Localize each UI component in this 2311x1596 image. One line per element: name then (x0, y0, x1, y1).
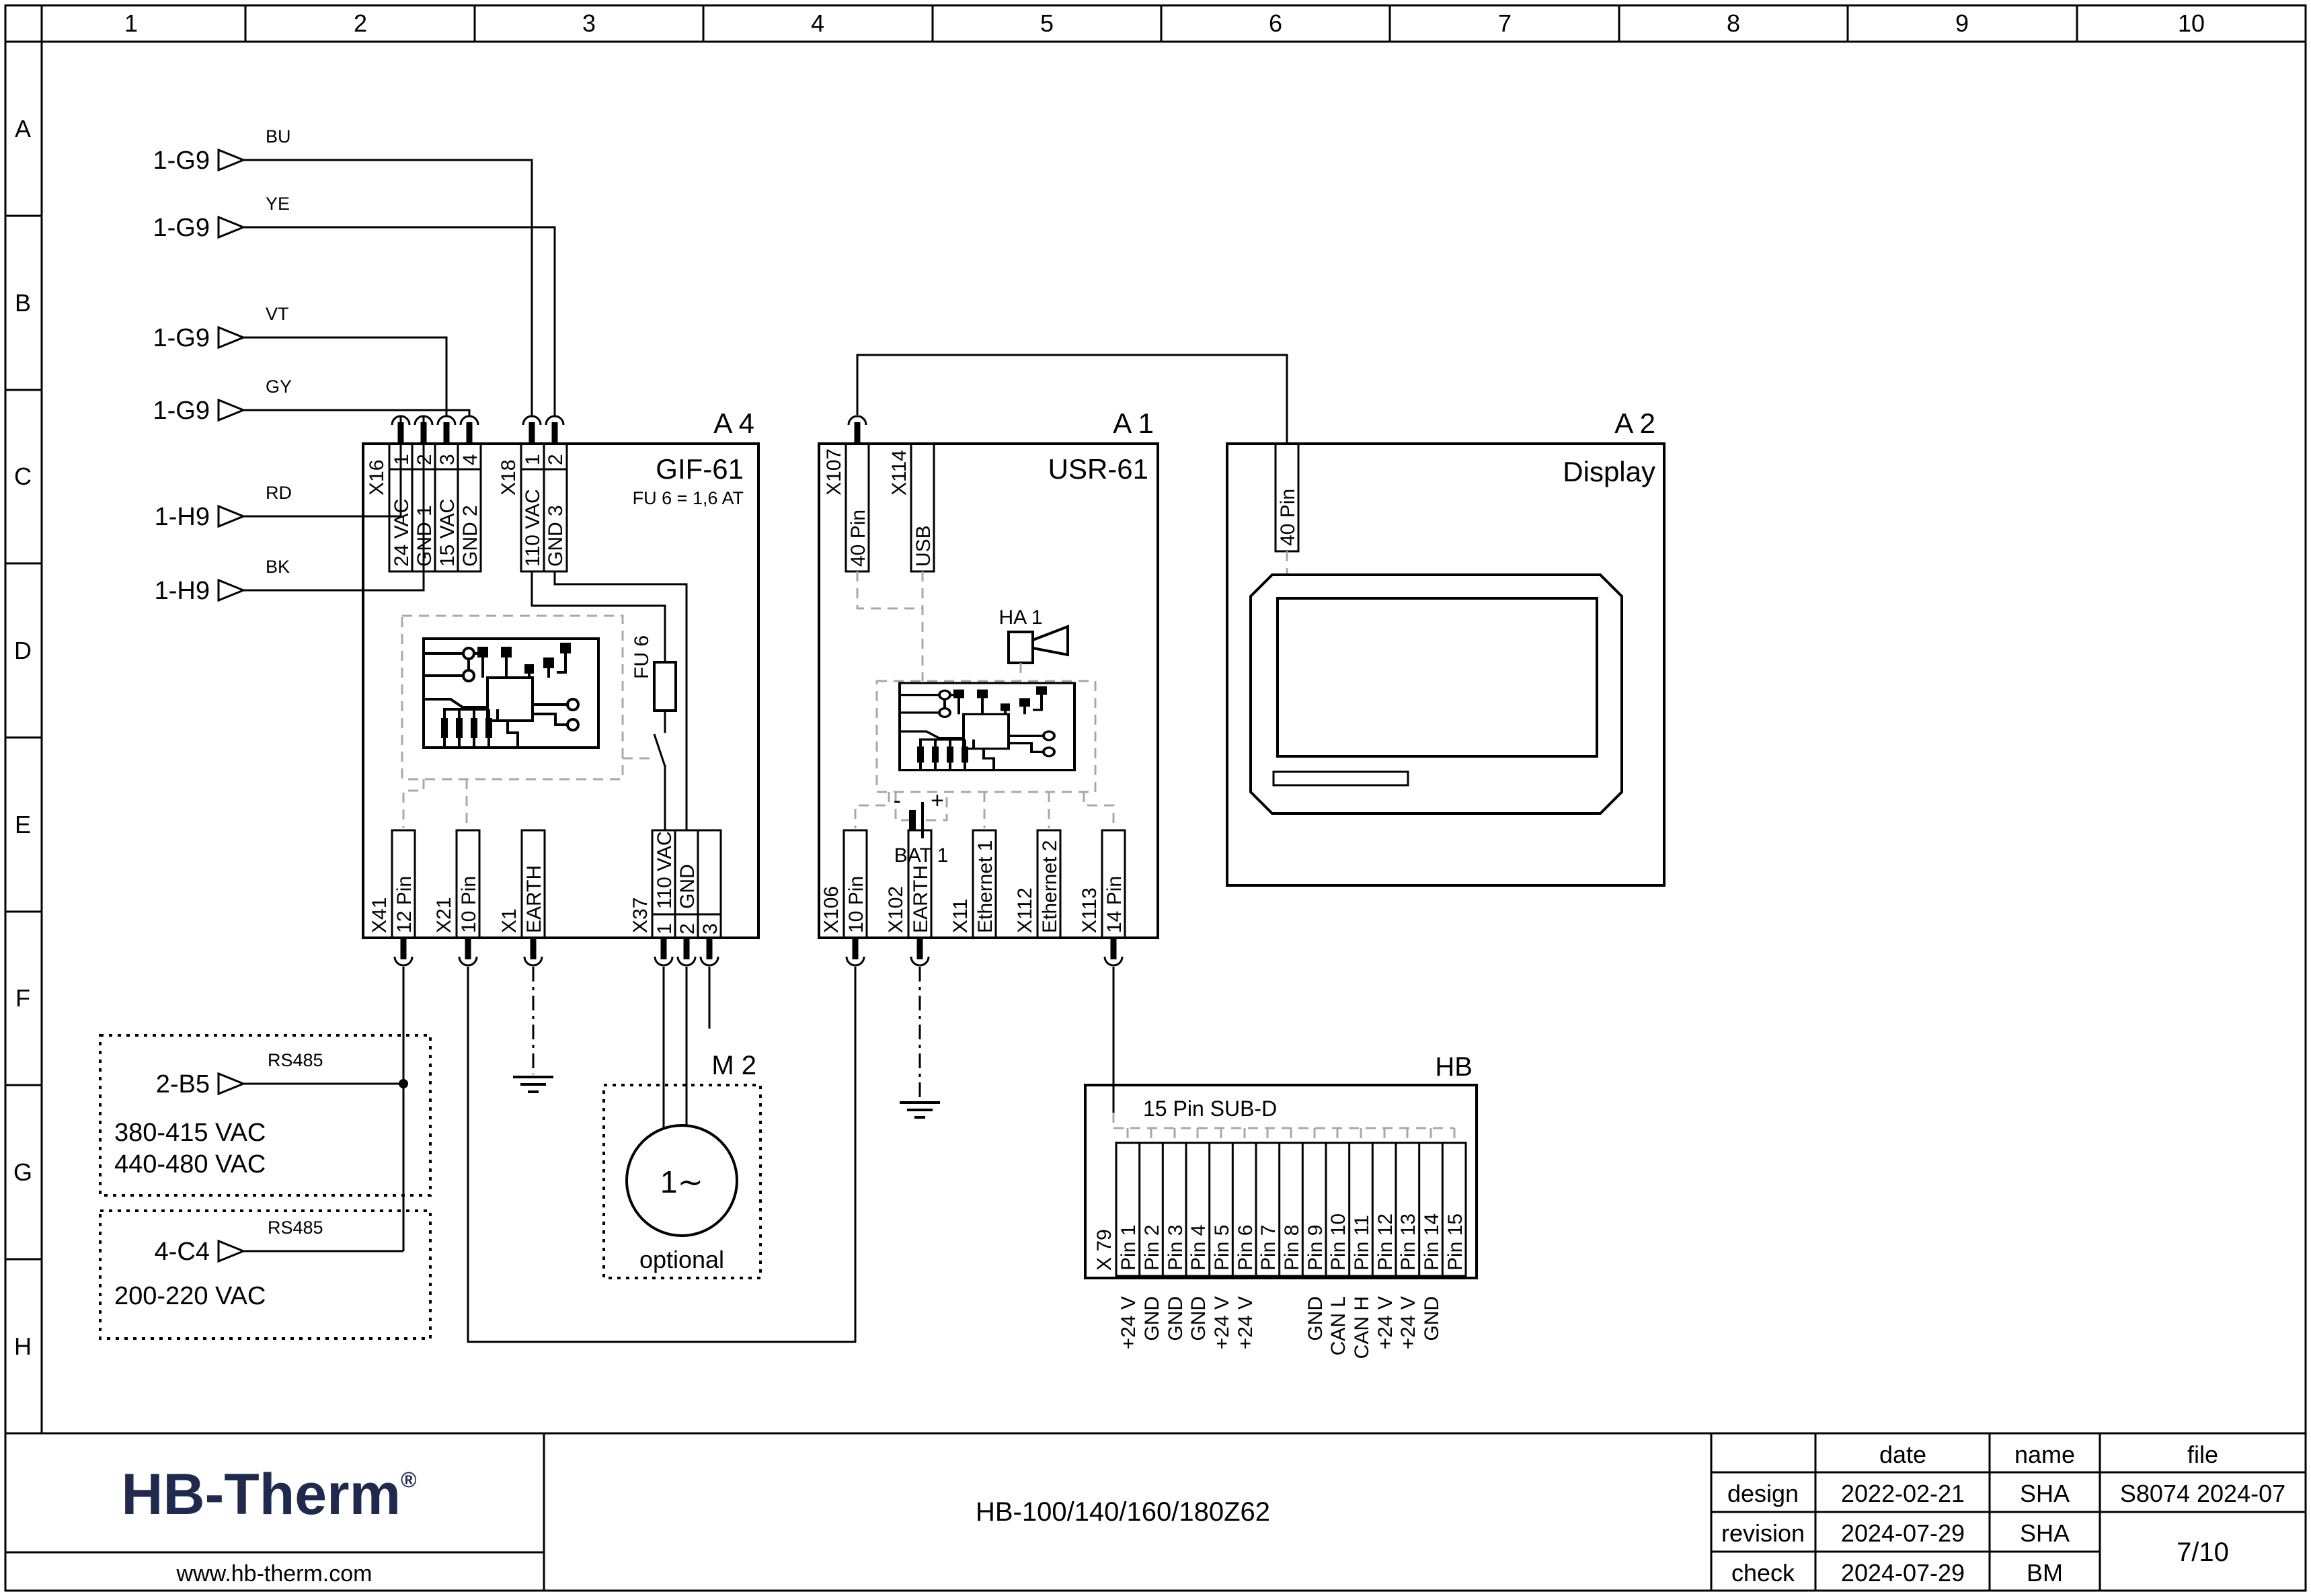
module-a1-usr61: A 1 USR-61 X107 40 Pin X114 USB HA 1 - +… (819, 407, 1158, 965)
connector-x41: X41 12 Pin (368, 830, 416, 938)
motor-note: optional (639, 1246, 724, 1273)
connector-label: X113 (1079, 887, 1101, 933)
grid-row: H (14, 1332, 32, 1360)
grid-col: 8 (1727, 9, 1740, 37)
pin-function: CAN L (1327, 1296, 1349, 1355)
connector-x114: X114 USB (888, 444, 935, 571)
battery-minus-plate (909, 810, 916, 830)
earth-symbol (900, 1103, 940, 1117)
wire-color-label: BK (266, 557, 290, 577)
wire-color-label: VT (266, 304, 289, 324)
bus-label: RS485 (268, 1050, 323, 1070)
page-number: 7/10 (2177, 1538, 2229, 1567)
revision-name: SHA (2020, 1519, 2070, 1547)
wire-color-label: GY (266, 376, 292, 397)
pin-number: 1 (522, 454, 544, 465)
module-ref: A 4 (713, 407, 754, 439)
grid-row: F (15, 984, 30, 1012)
ha1-horn: HA 1 (998, 606, 1068, 681)
connector-x112: X112 Ethernet 2 (1014, 830, 1061, 938)
fuse-note: FU 6 = 1,6 AT (633, 488, 744, 508)
connector-x107: X107 40 Pin (823, 444, 869, 571)
pin-name: Pin 4 (1187, 1225, 1210, 1271)
pin-function: +24 V (1374, 1296, 1397, 1349)
connector-x21: X21 10 Pin (433, 830, 480, 938)
schematic-page: 1 2 3 4 5 6 7 8 9 10 A B C D E F G H 1-G… (0, 0, 2311, 1596)
pin-label: 40 Pin (1277, 489, 1299, 546)
battery-plus-sign: + (931, 788, 944, 813)
display-screen-icon (1251, 575, 1622, 813)
module-ref: A 1 (1113, 407, 1154, 439)
arrow-1g9-ye: 1-G9 YE (153, 194, 555, 415)
arrow-ref: 1-G9 (153, 214, 210, 242)
pin-name: Pin 15 (1444, 1213, 1466, 1271)
arrow-1g9-bu: 1-G9 BU (153, 126, 532, 415)
grid-col: 5 (1040, 9, 1054, 37)
connector-label: X107 (823, 448, 845, 495)
grid-col: 4 (811, 9, 824, 37)
pin-name: Pin 14 (1421, 1213, 1443, 1271)
grid-col: 7 (1498, 9, 1512, 37)
check-date: 2024-07-29 (1841, 1559, 1965, 1587)
connector-label: X41 (368, 897, 391, 933)
check-name: BM (2027, 1559, 2063, 1587)
company-url: www.hb-therm.com (176, 1561, 373, 1587)
title-block: HB-Therm® www.hb-therm.com HB-100/140/16… (5, 1433, 2306, 1591)
drawing-frame: 1 2 3 4 5 6 7 8 9 10 A B C D E F G H (5, 5, 2306, 1591)
grid-row: G (13, 1158, 32, 1186)
wiring-diagram: 1 2 3 4 5 6 7 8 9 10 A B C D E F G H 1-G… (0, 0, 2311, 1596)
module-name: GIF-61 (656, 453, 744, 485)
pin-number: 3 (699, 923, 721, 934)
table-header-date: date (1879, 1441, 1926, 1468)
pin-label: USB (912, 525, 935, 567)
pin-function: GND (1141, 1296, 1163, 1341)
pin-name: Pin 11 (1351, 1215, 1373, 1271)
arrow-ref: 1-G9 (153, 324, 210, 352)
module-a4-gif61: A 4 GIF-61 FU 6 = 1,6 AT X16 1 2 3 4 24 … (363, 407, 758, 965)
grid-row: A (15, 115, 31, 143)
fuse-label: FU 6 (631, 635, 653, 679)
table-header-name: name (2014, 1441, 2075, 1468)
grid-row: D (14, 637, 32, 664)
connector-x18: X18 1 2 110 VAC GND 3 (498, 444, 567, 571)
pin-number: 2 (414, 454, 436, 465)
grid-col: 1 (124, 9, 138, 37)
connector-label: X102 (885, 886, 907, 933)
pin-name: Pin 6 (1235, 1225, 1257, 1271)
pin-function: +24 V (1235, 1296, 1257, 1349)
horn-label: HA 1 (998, 606, 1042, 629)
connector-x37: X37 1 2 3 110 VAC GND (629, 830, 721, 938)
pin-name: Pin 5 (1211, 1225, 1233, 1271)
pin-name: Pin 2 (1141, 1225, 1163, 1271)
pin-name: Pin 1 (1118, 1225, 1140, 1271)
wire-color-label: RD (266, 483, 292, 503)
pin-function: +24 V (1118, 1296, 1140, 1349)
connector-label: X21 (433, 897, 455, 933)
grid-col: 3 (582, 9, 596, 37)
grid-col: 2 (354, 9, 367, 37)
supply-ref: 4-C4 (155, 1238, 210, 1266)
connector-40pin-a2: 40 Pin (1276, 444, 1299, 551)
wire-x107-to-a2 (857, 355, 1287, 444)
pin-label: EARTH (523, 865, 545, 933)
battery-minus-sign: - (894, 788, 901, 813)
design-date: 2022-02-21 (1841, 1480, 1965, 1507)
pin-name: Pin 12 (1374, 1213, 1397, 1271)
pin-number: 4 (459, 454, 481, 465)
wire-color-label: YE (266, 194, 290, 214)
connector-label: X11 (949, 899, 972, 933)
motor-symbol: 1∼ (660, 1164, 703, 1199)
pin-label: 10 Pin (458, 876, 480, 933)
connector-label: X18 (498, 460, 520, 495)
pin-function: +24 V (1211, 1296, 1233, 1349)
pin-label: GND 1 (414, 505, 436, 567)
horn-icon (1033, 627, 1068, 655)
pin-number: 2 (676, 923, 699, 934)
pin-name: Pin 10 (1327, 1213, 1349, 1271)
pin-number: 3 (436, 454, 459, 465)
grid-col: 6 (1269, 9, 1282, 37)
grid-row: B (15, 289, 31, 317)
a4-internal-wires: FU 6 (532, 571, 687, 830)
junction-dot (399, 1079, 408, 1088)
pin-function: GND (1421, 1296, 1443, 1341)
module-name: USR-61 (1048, 453, 1148, 485)
pin-label: GND (676, 864, 699, 909)
connector-label: X 79 (1093, 1229, 1115, 1271)
pin-label: GND 2 (459, 505, 481, 567)
hb-pin-functions: +24 V GND GND GND +24 V +24 V GND CAN L … (1118, 1296, 1443, 1359)
connector-label: X106 (820, 886, 843, 933)
switch-contact (654, 734, 665, 766)
arrow-ref: 1-H9 (155, 577, 210, 605)
pin-label: Ethernet 2 (1039, 840, 1061, 933)
pin-function: CAN H (1351, 1296, 1373, 1359)
connector-x11: X11 Ethernet 1 (949, 830, 996, 938)
voltage-line: 200-220 VAC (114, 1282, 266, 1310)
company-logo: HB-Therm® (121, 1462, 417, 1527)
pin-function: GND (1165, 1296, 1187, 1341)
pin-label: 110 VAC (654, 831, 676, 909)
table-header-file: file (2187, 1441, 2218, 1468)
connector-label: X1 (498, 908, 520, 933)
hb-title: 15 Pin SUB-D (1143, 1096, 1277, 1121)
connector-label: X37 (629, 897, 652, 933)
module-name: Display (1563, 456, 1655, 487)
arrow-ref: 1-G9 (153, 397, 210, 425)
file-id: S8074 2024-07 (2120, 1480, 2285, 1507)
pin-label: GND 3 (545, 505, 567, 567)
connector-label: X114 (888, 450, 910, 495)
earth-symbol (513, 1077, 553, 1092)
pin-label: 15 VAC (436, 499, 459, 567)
grid-col: 10 (2178, 9, 2205, 37)
pin-name: Pin 13 (1397, 1213, 1419, 1271)
pin-name: Pin 3 (1165, 1225, 1187, 1271)
connector-x1: X1 EARTH (498, 830, 545, 938)
pin-number: 1 (654, 923, 676, 934)
pin-name: Pin 7 (1257, 1225, 1280, 1271)
design-name: SHA (2020, 1480, 2070, 1507)
motor-ref: M 2 (711, 1051, 756, 1080)
module-ref: A 2 (1614, 407, 1655, 439)
pin-function: GND (1304, 1296, 1327, 1341)
pin-label: EARTH (910, 865, 932, 933)
grid-row: C (14, 463, 32, 490)
hb-subd: HB 15 Pin SUB-D X 79 Pin 1 Pin 2 Pin 3 P… (1085, 1052, 1477, 1359)
pin-number: 1 (391, 454, 413, 465)
bus-label: RS485 (268, 1218, 323, 1238)
row-label-revision: revision (1721, 1519, 1805, 1547)
arrow-ref: 1-H9 (155, 503, 210, 531)
connector-x106: X106 10 Pin (820, 830, 867, 938)
pin-name: Pin 9 (1304, 1225, 1327, 1271)
pin-label: Ethernet 1 (974, 840, 996, 933)
voltage-line: 380-415 VAC (114, 1119, 266, 1147)
model-title: HB-100/140/160/180Z62 (976, 1497, 1270, 1527)
grid-row: E (15, 811, 31, 838)
row-label-check: check (1731, 1559, 1795, 1587)
connector-x16: X16 1 2 3 4 24 VAC GND 1 15 VAC GND 2 (366, 444, 481, 571)
arrow-ref: 1-G9 (153, 147, 210, 175)
hb-ref: HB (1435, 1052, 1473, 1082)
pin-number: 2 (545, 454, 567, 465)
module-a2-display: A 2 Display 40 Pin (1227, 407, 1664, 885)
pin-label: 110 VAC (522, 489, 544, 567)
pin-name: Pin 8 (1281, 1225, 1303, 1271)
source-arrows: 1-G9 BU 1-G9 YE 1-G9 VT 1-G9 GY 1-H9 RD … (153, 126, 555, 605)
row-label-design: design (1727, 1480, 1799, 1507)
battery-label: BAT 1 (894, 844, 949, 867)
pin-function: +24 V (1397, 1296, 1419, 1349)
supply-4c4: 4-C4 RS485 200-220 VAC (100, 1211, 430, 1339)
grid-col: 9 (1955, 9, 1969, 37)
wire-color-label: BU (266, 126, 291, 147)
pin-label: 12 Pin (393, 876, 416, 933)
supply-2b5: 2-B5 RS485 380-415 VAC 440-480 VAC (100, 1035, 430, 1195)
arrow-1g9-gy: 1-G9 GY (153, 376, 469, 425)
revision-date: 2024-07-29 (1841, 1519, 1965, 1547)
pin-label: 14 Pin (1103, 876, 1126, 933)
bat1-battery: - + BAT 1 (894, 788, 949, 867)
connector-x113: X113 14 Pin (1079, 830, 1126, 938)
connector-label: X16 (366, 460, 388, 495)
pin-label: 10 Pin (845, 876, 867, 933)
pin-label: 40 Pin (847, 510, 869, 567)
motor-m2: M 2 1∼ optional (604, 1051, 760, 1278)
voltage-line: 440-480 VAC (114, 1150, 266, 1179)
grid-column-labels: 1 2 3 4 5 6 7 8 9 10 (124, 9, 2205, 37)
pin-label: 24 VAC (391, 499, 413, 567)
connector-label: X112 (1014, 887, 1036, 933)
pin-function: GND (1187, 1296, 1210, 1341)
supply-ref: 2-B5 (156, 1070, 210, 1099)
